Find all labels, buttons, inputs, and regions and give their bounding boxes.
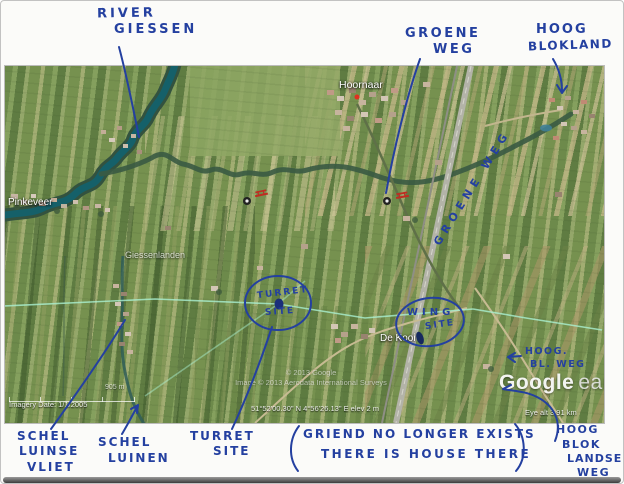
annotation-turret-site-in-circle: SITE bbox=[265, 306, 296, 318]
annotation-luinen: LUINEN bbox=[108, 451, 170, 465]
annotation-turret-label: TURRET bbox=[190, 429, 255, 443]
annotation-wing-in-circle: WING bbox=[407, 307, 454, 318]
map-label-pinkeveer: Pinkeveer bbox=[8, 197, 52, 208]
annotation-note-line2: THERE IS HOUSE THERE bbox=[321, 447, 531, 461]
scale-label: 905 m bbox=[105, 384, 124, 391]
annotation-landse: LANDSE bbox=[567, 452, 622, 465]
copyright-google: © 2013 Google bbox=[221, 368, 401, 377]
map-label-hoornaar: Hoornaar bbox=[339, 79, 383, 91]
annotation-giessen: GIESSEN bbox=[114, 22, 197, 37]
status-eye-alt: Eye alt 3.91 km bbox=[525, 408, 577, 417]
satellite-map-image: Pinkeveer Hoornaar Giessenlanden De Kooi… bbox=[5, 66, 604, 423]
annotation-hoog: HOOG bbox=[536, 22, 588, 37]
note-paren-left bbox=[291, 426, 299, 471]
annotation-schel-2: SCHEL bbox=[98, 435, 151, 449]
scan-edge-shadow bbox=[3, 477, 621, 483]
google-earth-logo-word1: Google bbox=[499, 371, 574, 394]
annotation-blokland: BLOKLAND bbox=[528, 37, 613, 54]
google-earth-logo-word2: earth bbox=[578, 371, 604, 394]
map-label-de-kooi: De Kooi bbox=[380, 333, 416, 344]
annotation-vliet: VLIET bbox=[27, 460, 75, 474]
copyright-aerodata: Image © 2013 Aerodata International Surv… bbox=[161, 378, 461, 387]
annotation-note-line1: GRIEND NO LONGER EXISTS bbox=[303, 427, 536, 441]
map-label-giessenlanden: Giessenlanden bbox=[125, 250, 185, 260]
imagery-date: Imagery Date: 1/1/2005 bbox=[9, 400, 87, 409]
annotation-groene: GROENE bbox=[405, 26, 480, 41]
placemark-biplane-icon bbox=[243, 189, 268, 205]
scanned-annotated-map-page: Pinkeveer Hoornaar Giessenlanden De Kooi… bbox=[0, 0, 624, 484]
annotation-hoog-bl: HOOG. bbox=[525, 346, 568, 357]
annotation-bl-weg: BL. WEG bbox=[530, 359, 585, 370]
annotation-turret-site-label: SITE bbox=[213, 444, 251, 458]
status-coordinates: 51°52'00.30" N 4°56'26.13" E elev 2 m bbox=[155, 404, 475, 413]
annotation-luinse: LUINSE bbox=[19, 444, 79, 458]
annotation-schel-1: SCHEL bbox=[17, 429, 70, 443]
google-earth-logo: Googleearth bbox=[499, 371, 604, 395]
town-marker-icon bbox=[355, 95, 360, 100]
annotation-river: RIVER bbox=[97, 5, 156, 21]
annotation-weg: WEG bbox=[433, 42, 474, 57]
annotation-blok: BLOK bbox=[562, 438, 601, 451]
placemark-biplane-icon bbox=[383, 191, 409, 205]
annotation-hoog-2: HOOG bbox=[556, 423, 599, 436]
hamlet-de-kooi bbox=[331, 324, 375, 343]
